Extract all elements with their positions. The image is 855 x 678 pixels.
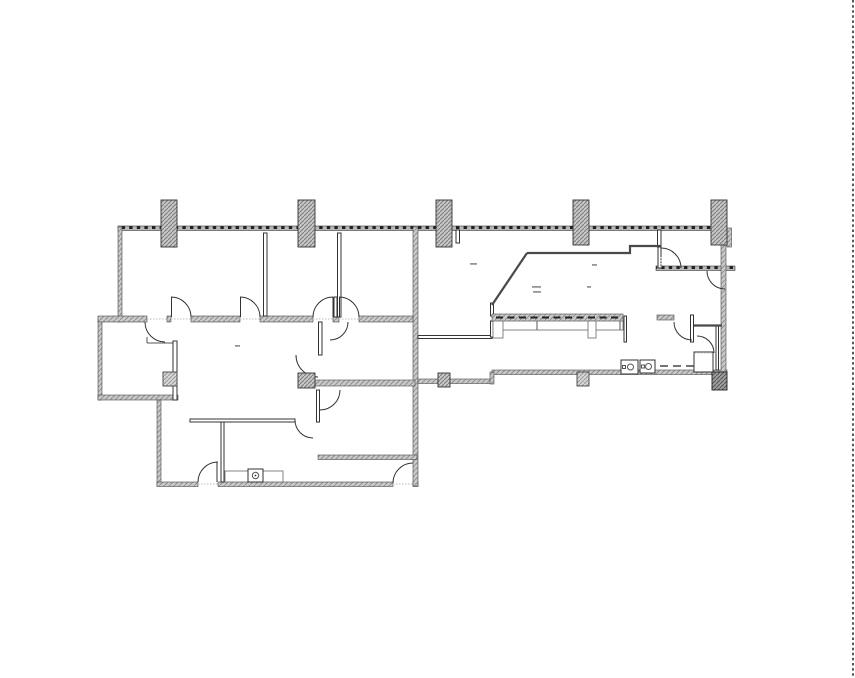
- structural-column: [577, 372, 589, 386]
- wall-top-right-stub: [727, 228, 732, 247]
- wall-right-wing-bottom: [492, 370, 727, 375]
- kitchen-counter-return: [493, 321, 503, 338]
- wall-room-east: [173, 341, 177, 400]
- door-office1: [171, 297, 191, 317]
- wall-corridor-north-seg: [191, 316, 240, 322]
- structural-column: [298, 200, 315, 247]
- room-label-mark: [587, 286, 591, 288]
- wall-break-diagonal: [492, 253, 527, 305]
- wall-step: [490, 372, 494, 384]
- door-room-a: [661, 248, 681, 268]
- wall-bottom-seg: [218, 482, 393, 487]
- partition-closet-east: [716, 326, 719, 370]
- millwork: [225, 318, 713, 483]
- wall-bottom-seg: [157, 482, 198, 487]
- structural-column: [573, 200, 589, 245]
- door-leaf-frame: [694, 352, 713, 372]
- room-label-mark: [235, 345, 240, 347]
- door-office4: [339, 297, 359, 317]
- structural-column: [161, 200, 177, 247]
- exterior-walls: [98, 226, 735, 487]
- washroom-sink: [621, 360, 638, 374]
- door-storage-left: [145, 322, 165, 342]
- partition-room-a: [658, 230, 662, 247]
- partition-door-stub: [334, 297, 337, 317]
- washroom-sinks: [621, 360, 655, 374]
- door-corridor-south: [330, 322, 348, 340]
- room-label-mark: [533, 291, 541, 293]
- floor-plan-page: [0, 0, 855, 678]
- room-label-mark: [470, 263, 477, 265]
- wall-wing-divider: [413, 227, 418, 486]
- partition-room-vertical: [319, 322, 323, 355]
- structural-column: [711, 200, 727, 245]
- structural-column: [438, 373, 450, 387]
- wall-room-south-hatched: [318, 455, 417, 460]
- room-label-mark: [532, 286, 541, 288]
- floor-plan-canvas: [0, 0, 855, 678]
- washroom-sink: [640, 360, 655, 373]
- room-label-mark: [592, 264, 597, 266]
- wall-left-upper: [118, 227, 122, 322]
- kitchen-counter: [493, 321, 623, 330]
- partition-stub-mid: [456, 230, 460, 243]
- door-washroom: [674, 322, 692, 340]
- door-bottom-right: [393, 463, 413, 483]
- door-office3: [313, 297, 333, 317]
- wall-break-north-jog: [527, 246, 661, 253]
- wall-left-lower: [98, 319, 102, 400]
- sink-drain-icon: [255, 475, 257, 477]
- door-mid-room: [320, 390, 340, 410]
- door-inner-room: [295, 420, 313, 438]
- door-closet: [697, 336, 714, 353]
- partition-closet-west: [691, 315, 694, 342]
- partition-mid-vertical: [317, 390, 320, 422]
- partition-office-1: [264, 233, 268, 316]
- wall-right-exterior: [721, 245, 726, 372]
- wall-corridor-north-seg: [167, 316, 171, 322]
- wall-room-bottom-left: [98, 395, 178, 400]
- wall-corridor-north-seg: [359, 316, 413, 322]
- door-bottom-left: [198, 462, 218, 482]
- partition-washroom: [624, 316, 627, 342]
- structural-column: [712, 372, 727, 390]
- wall-band-seg-right: [657, 315, 674, 320]
- structural-columns-top: [161, 200, 727, 247]
- structural-column: [163, 372, 177, 386]
- partition-lower-vertical: [221, 422, 224, 482]
- wall-neck-bottom: [418, 379, 492, 384]
- wall-corridor-south: [315, 380, 415, 386]
- partition-lower-horizontal: [190, 419, 295, 422]
- structural-column: [298, 373, 315, 388]
- kitchen-counter-return: [588, 321, 596, 338]
- wall-corridor-north-seg: [260, 316, 313, 322]
- interior-partitions: [147, 230, 722, 482]
- structural-column: [436, 200, 452, 247]
- partition-neck-north: [418, 336, 492, 339]
- wall-corridor-north-seg: [98, 316, 147, 322]
- door-office2: [240, 297, 260, 317]
- wall-left-bottom-run: [157, 400, 161, 486]
